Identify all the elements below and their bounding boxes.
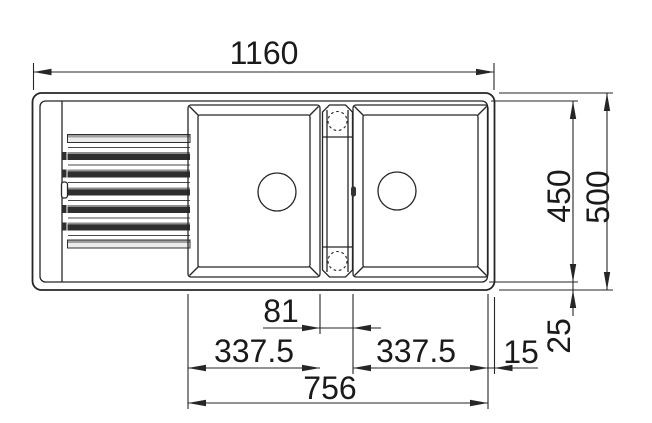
dim-label-right-bowl-width: 337.5 bbox=[376, 333, 456, 369]
arrow-left-icon bbox=[188, 400, 206, 406]
rib-bar-dark-2 bbox=[62, 170, 190, 178]
arrow-right-icon bbox=[470, 365, 488, 371]
rib-bar-edge-bottom bbox=[68, 240, 191, 248]
arrow-left-icon bbox=[34, 69, 52, 75]
arrow-up-icon bbox=[570, 101, 576, 119]
rib-bar-edge-top bbox=[68, 135, 191, 143]
dim-label-edge-offset-bottom: 25 bbox=[541, 318, 577, 354]
arrow-right-icon bbox=[470, 400, 488, 406]
technical-drawing-canvas: 1160 450 500 25 81 337.5 bbox=[0, 0, 652, 423]
dim-edge-offset-bottom: 25 bbox=[541, 290, 577, 354]
dim-label-bowls-total-width: 756 bbox=[303, 370, 356, 406]
dim-label-overall-depth: 500 bbox=[580, 170, 616, 223]
center-ledge bbox=[323, 105, 357, 277]
dim-overall-width: 1160 bbox=[34, 35, 495, 90]
dim-label-inner-depth: 450 bbox=[541, 169, 577, 222]
arrow-down-icon bbox=[604, 272, 610, 290]
grip-slot bbox=[62, 182, 68, 198]
arrow-right-icon bbox=[302, 325, 320, 331]
rib-bar-dark-5 bbox=[62, 223, 190, 231]
overflow-marker bbox=[351, 187, 356, 197]
arrow-right-icon bbox=[476, 69, 494, 75]
sink-top-view bbox=[33, 93, 495, 290]
dim-bowls-total-width: 756 bbox=[188, 370, 488, 406]
arrow-up-icon bbox=[604, 93, 610, 111]
dim-label-edge-offset-side: 15 bbox=[503, 334, 539, 370]
right-bowl-inner-edge bbox=[363, 115, 478, 267]
right-bowl-corner-bevels bbox=[355, 107, 487, 276]
tap-hole-top-icon bbox=[328, 112, 347, 131]
arrow-left-icon bbox=[353, 325, 371, 331]
sink-dimension-drawing: 1160 450 500 25 81 337.5 bbox=[0, 0, 652, 423]
rib-bar-dark-3 bbox=[62, 188, 190, 196]
dim-label-overall-width: 1160 bbox=[230, 35, 299, 71]
left-bowl-outer-edge bbox=[188, 105, 320, 277]
rib-bar-dark-1 bbox=[62, 152, 190, 160]
arrow-down-icon bbox=[570, 264, 576, 282]
dim-left-bowl-width: 337.5 bbox=[188, 294, 320, 409]
left-bowl-corner-bevels bbox=[190, 107, 319, 276]
right-bowl-drain bbox=[378, 172, 416, 210]
right-bowl bbox=[353, 105, 488, 277]
arrow-up-icon bbox=[570, 290, 576, 308]
dim-label-center-gap: 81 bbox=[263, 293, 299, 329]
left-bowl bbox=[188, 105, 320, 277]
dim-right-bowl-width: 337.5 15 bbox=[353, 294, 539, 409]
drainboard bbox=[62, 102, 191, 282]
tap-hole-bottom-icon bbox=[328, 252, 347, 271]
left-bowl-inner-edge bbox=[198, 115, 310, 267]
dim-inner-depth: 450 bbox=[489, 101, 578, 316]
left-bowl-drain bbox=[258, 173, 296, 211]
dim-label-left-bowl-width: 337.5 bbox=[214, 333, 294, 369]
rib-bar-dark-4 bbox=[62, 205, 190, 213]
right-bowl-outer-edge bbox=[353, 105, 488, 277]
arrow-left-icon bbox=[188, 365, 206, 371]
